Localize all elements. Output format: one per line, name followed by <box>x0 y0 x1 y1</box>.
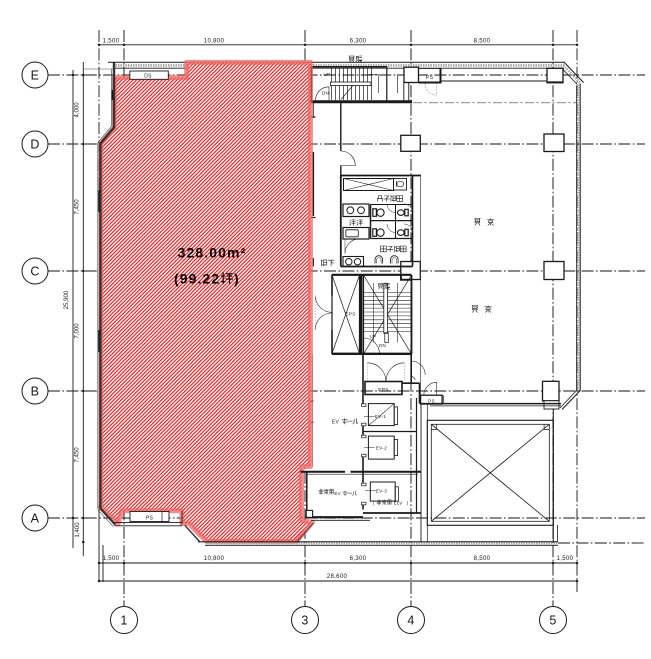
svg-text:7,450: 7,450 <box>74 447 81 463</box>
svg-text:UP: UP <box>324 72 331 77</box>
svg-text:1,500: 1,500 <box>103 555 120 562</box>
svg-text:EV-2: EV-2 <box>376 446 387 451</box>
svg-text:C: C <box>30 265 39 279</box>
svg-text:3: 3 <box>301 614 308 628</box>
svg-text:PS: PS <box>428 398 435 403</box>
svg-text:28,600: 28,600 <box>327 573 348 580</box>
svg-text:): ) <box>234 271 239 287</box>
svg-text:1,500: 1,500 <box>557 555 574 562</box>
svg-text:E: E <box>31 69 40 83</box>
svg-text:1,400: 1,400 <box>74 522 81 538</box>
svg-text:): ) <box>407 500 409 505</box>
svg-text:10,800: 10,800 <box>204 555 225 562</box>
svg-text:EV-3: EV-3 <box>376 488 387 493</box>
svg-text:8,500: 8,500 <box>474 38 491 45</box>
svg-text:PS: PS <box>146 515 154 521</box>
svg-text:1,500: 1,500 <box>103 38 120 45</box>
svg-text:UP: UP <box>369 334 376 339</box>
svg-text:EV: EV <box>332 420 340 426</box>
svg-text:328.00m²: 328.00m² <box>178 245 247 261</box>
svg-text:5: 5 <box>549 614 556 628</box>
svg-text:4,000: 4,000 <box>74 102 81 118</box>
svg-text:EPS: EPS <box>378 387 389 393</box>
svg-text:(99.22: (99.22 <box>174 271 220 287</box>
svg-text:EV-1: EV-1 <box>375 414 386 419</box>
svg-text:8,500: 8,500 <box>474 555 491 562</box>
svg-text:EV: EV <box>334 491 340 496</box>
svg-text:7,000: 7,000 <box>74 323 81 339</box>
svg-text:6,300: 6,300 <box>350 38 367 45</box>
svg-text:DS: DS <box>144 74 152 80</box>
svg-text:4: 4 <box>407 614 414 628</box>
svg-text:PS: PS <box>426 75 434 81</box>
svg-text:A: A <box>31 512 40 526</box>
svg-text:DN: DN <box>322 91 329 96</box>
svg-text:EPS: EPS <box>345 311 356 317</box>
svg-text:6,300: 6,300 <box>350 555 367 562</box>
svg-text:D: D <box>30 138 39 152</box>
svg-text:7,450: 7,450 <box>74 199 81 215</box>
svg-text:B: B <box>31 385 40 399</box>
svg-text:DN: DN <box>379 343 386 348</box>
svg-text:(: ( <box>373 500 375 505</box>
svg-text:ELV: ELV <box>394 500 403 505</box>
svg-text:1: 1 <box>120 614 127 628</box>
svg-text:25,900: 25,900 <box>63 290 70 309</box>
svg-text:10,800: 10,800 <box>204 38 225 45</box>
